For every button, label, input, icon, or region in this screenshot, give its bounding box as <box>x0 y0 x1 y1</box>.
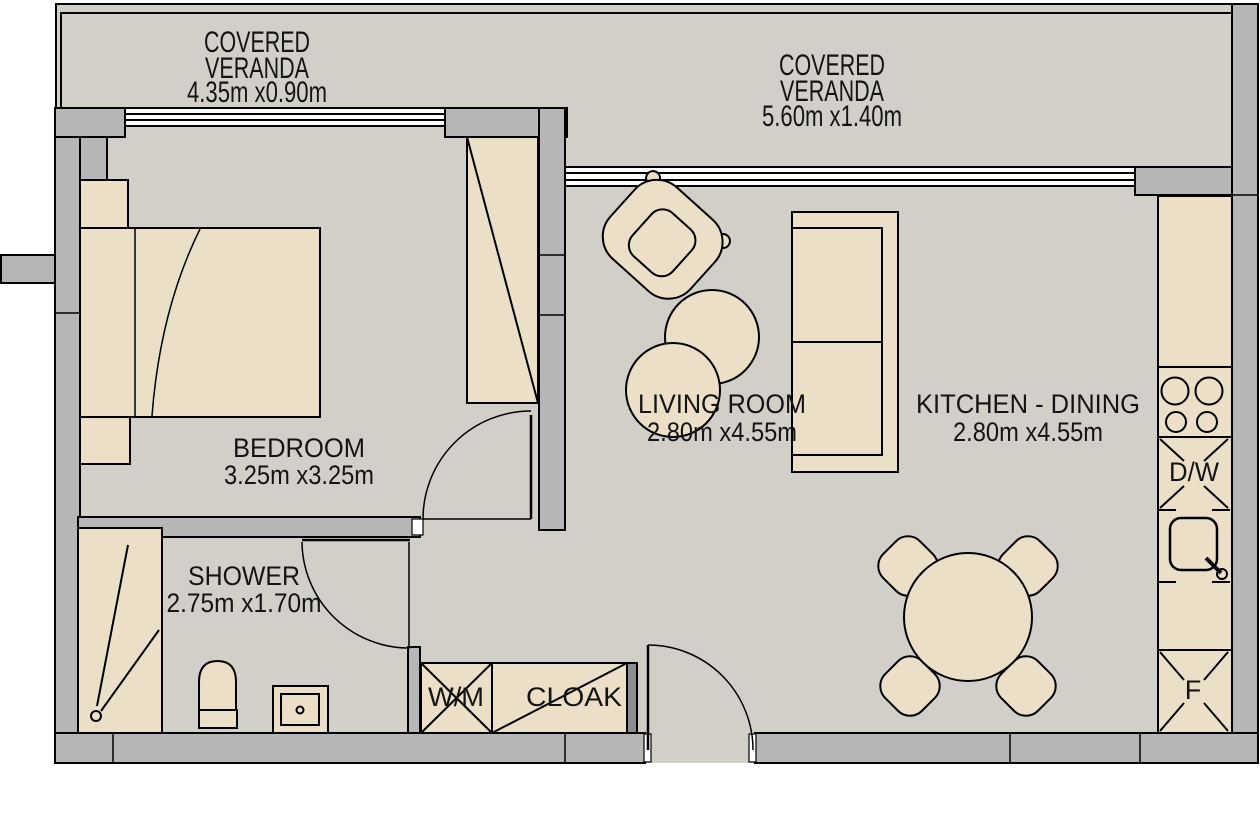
bed <box>80 228 320 417</box>
wall-top-right <box>1135 167 1232 195</box>
shower-dimensions: 2.75m x1.70m <box>167 588 322 618</box>
wall-bottom-right <box>755 733 1258 763</box>
wall-pillar-bedroom <box>80 137 107 183</box>
nightstand-top <box>80 180 128 229</box>
wall-right <box>1232 4 1258 763</box>
wall-bedroom-right <box>539 108 565 530</box>
living-room-dimensions: 2.80m x4.55m <box>647 417 797 447</box>
wall-closet-right <box>627 663 637 733</box>
dishwasher-label: D/W <box>1169 457 1219 487</box>
cloak-label: CLOAK <box>526 682 622 712</box>
floor-plan-drawing: COVERED VERANDA 4.35m x0.90m COVERED VER… <box>0 0 1260 813</box>
bedroom-label: BEDROOM <box>233 433 365 463</box>
kitchen-dining-dimensions: 2.80m x4.55m <box>953 417 1103 447</box>
kitchen-dining-label: KITCHEN - DINING <box>916 389 1140 419</box>
veranda-left-dimensions: 4.35m x0.90m <box>187 76 327 109</box>
shower-label: SHOWER <box>188 561 300 591</box>
fridge-label: F <box>1185 675 1202 705</box>
toilet-base <box>199 710 237 728</box>
living-room-label: LIVING ROOM <box>638 389 806 419</box>
toilet-bowl <box>199 661 236 710</box>
wall-corner-top-left <box>55 108 125 137</box>
wall-left <box>55 108 80 733</box>
bedroom-window <box>125 107 445 126</box>
bedroom-door-threshold <box>412 519 423 535</box>
dining-table <box>904 553 1032 681</box>
bedroom-dimensions: 3.25m x3.25m <box>224 460 374 490</box>
veranda-right-dimensions: 5.60m x1.40m <box>762 100 902 133</box>
shower-tray <box>78 528 162 733</box>
floor-plan-page: COVERED VERANDA 4.35m x0.90m COVERED VER… <box>0 0 1260 813</box>
wall-bottom-left <box>55 733 645 763</box>
washing-machine-label: W/M <box>428 682 484 712</box>
wall-hall-stub <box>408 647 420 733</box>
wall-left-pier <box>1 255 55 283</box>
nightstand-bottom <box>80 417 130 464</box>
